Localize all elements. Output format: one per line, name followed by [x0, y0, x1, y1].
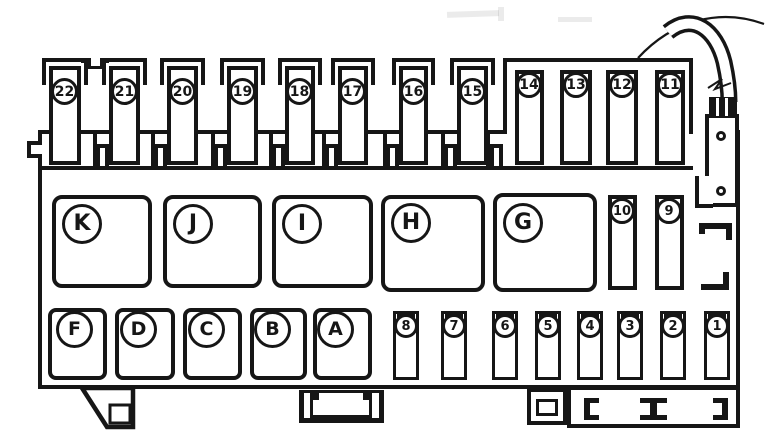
terminal-bracket-right-top — [713, 398, 728, 403]
fuse-7-label: 7 — [442, 314, 466, 338]
fuse-1-label: 1 — [705, 314, 729, 338]
connector-screw-hole-top — [716, 131, 726, 141]
shelf-line — [42, 166, 695, 170]
relay-K-label: K — [62, 204, 102, 244]
cap-bridge-notch — [88, 58, 103, 69]
edge-tab — [96, 144, 109, 166]
terminal-bracket-left-bottom — [584, 415, 599, 420]
terminal-bracket-right-bottom — [713, 415, 728, 420]
relay-C-label: C — [188, 311, 225, 348]
fuse-box-diagram: 22 21 20 19 18 17 16 15 14 13 12 11 K J … — [0, 0, 766, 445]
left-edge-notch — [27, 141, 42, 158]
fuse-13-label: 13 — [563, 72, 589, 98]
fuse-11-label: 11 — [657, 72, 683, 98]
smudge-mark — [447, 10, 499, 18]
fuse-10-label: 10 — [609, 198, 635, 224]
relay-G-label: G — [503, 203, 543, 243]
edge-tab — [490, 144, 503, 166]
fuse-18-label: 18 — [286, 78, 313, 105]
clip-nub — [363, 393, 372, 400]
fuse-3-label: 3 — [618, 314, 642, 338]
fuse-14-label: 14 — [516, 72, 542, 98]
fuse-17-label: 17 — [339, 78, 366, 105]
fuse-22-label: 22 — [51, 78, 78, 105]
right-bracket-lower-arm — [723, 272, 729, 290]
smudge-mark — [558, 17, 592, 22]
smudge-mark — [498, 7, 504, 21]
connector-foot — [695, 176, 713, 208]
fuse-15-label: 15 — [459, 78, 486, 105]
terminal-bracket-left-top — [584, 398, 599, 403]
relay-A-label: A — [317, 311, 354, 348]
fuse-2-label: 2 — [661, 314, 685, 338]
fuse-12-label: 12 — [609, 72, 635, 98]
relay-H-label: H — [391, 203, 431, 243]
fuse-6-label: 6 — [493, 314, 517, 338]
fuse-8-label: 8 — [394, 314, 418, 338]
edge-tab — [444, 144, 457, 166]
right-bracket-upper-arm — [726, 223, 732, 240]
clip-nub — [310, 393, 319, 400]
edge-tab — [272, 144, 285, 166]
connector-screw-hole-bottom — [716, 186, 726, 196]
relay-I-label: I — [282, 204, 322, 244]
fuse-16-label: 16 — [400, 78, 427, 105]
fuse-21-label: 21 — [111, 78, 138, 105]
edge-tab — [386, 144, 399, 166]
fuse-9-label: 9 — [656, 198, 682, 224]
fuse-19-label: 19 — [229, 78, 256, 105]
fuse-4-label: 4 — [578, 314, 602, 338]
edge-tab — [214, 144, 227, 166]
cable-entry-slit — [725, 98, 728, 116]
tab-square-hole — [110, 405, 130, 423]
right-bracket-upper-stub — [699, 223, 705, 234]
relay-B-label: B — [254, 311, 291, 348]
fuse-5-label: 5 — [536, 314, 560, 338]
edge-tab — [325, 144, 338, 166]
edge-tab — [154, 144, 167, 166]
terminal-ibeam-bottom — [640, 415, 667, 420]
relay-D-label: D — [120, 311, 157, 348]
cable-entry-slit — [716, 98, 719, 116]
bottom-square-hole — [536, 399, 558, 416]
relay-J-label: J — [173, 204, 213, 244]
relay-F-label: F — [56, 311, 93, 348]
fuse-20-label: 20 — [169, 78, 196, 105]
cable-entry — [709, 97, 737, 117]
mounting-tab-left — [76, 386, 138, 432]
